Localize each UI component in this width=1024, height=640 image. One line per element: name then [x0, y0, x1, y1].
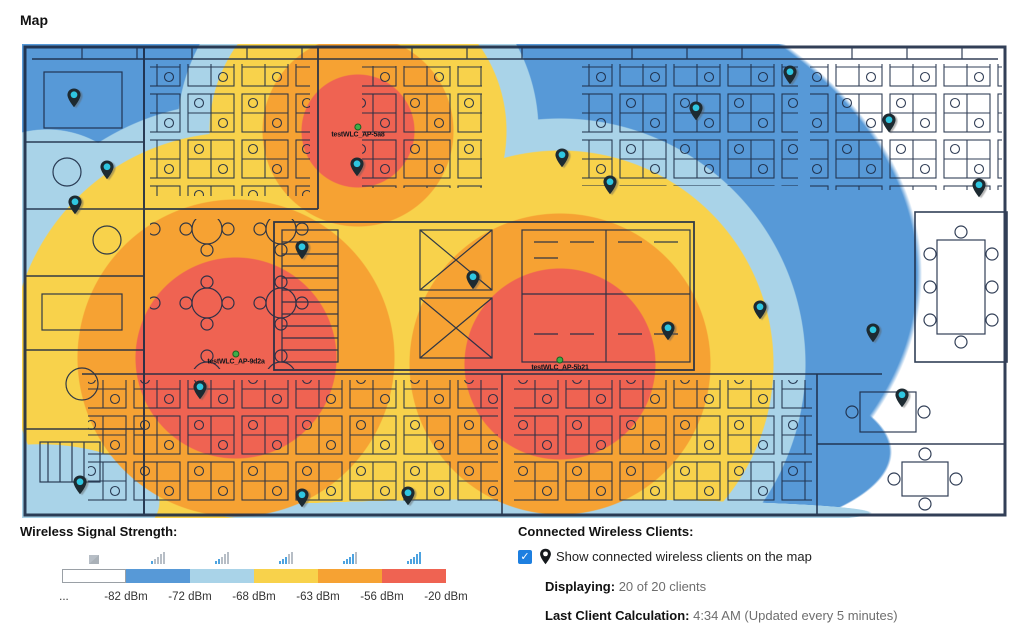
displaying-value: 20 of 20 clients — [619, 579, 706, 594]
legend-swatch — [382, 569, 446, 583]
legend-segment: -68 dBm — [190, 569, 254, 583]
last-calculation-line: Last Client Calculation: 4:34 AM (Update… — [545, 608, 898, 623]
client-pin[interactable] — [603, 174, 618, 195]
legend-segment: -82 dBm — [62, 569, 126, 583]
floor-map[interactable]: testWLC_AP-5a8testWLC_AP-9d2atestWLC_AP-… — [22, 44, 1008, 518]
signal-bars-icon — [407, 552, 421, 564]
client-pin[interactable] — [350, 156, 365, 177]
connected-clients-panel: Connected Wireless Clients: ✓ Show conne… — [516, 524, 898, 623]
legend-threshold-label: -72 dBm — [168, 591, 211, 603]
legend-segment: -72 dBm — [126, 569, 190, 583]
legend-bar: ... -82 dBm-72 dBm-68 dBm-63 dBm-56 dBm-… — [62, 569, 516, 583]
signal-bars-icon — [279, 552, 293, 564]
client-pin[interactable] — [555, 147, 570, 168]
displaying-label: Displaying: — [545, 579, 615, 594]
last-calculation-value: 4:34 AM (Updated every 5 minutes) — [693, 608, 898, 623]
signal-bars-icon — [89, 552, 99, 564]
signal-strength-legend: Wireless Signal Strength: ... -82 dBm-72… — [20, 524, 516, 623]
legend-swatch — [318, 569, 382, 583]
signal-bars-icon — [343, 552, 357, 564]
legend-swatch — [62, 569, 126, 583]
client-pin[interactable] — [466, 269, 481, 290]
legend-segment: -20 dBm — [382, 569, 446, 583]
client-pin[interactable] — [193, 379, 208, 400]
client-pin[interactable] — [753, 299, 768, 320]
legend-threshold-label: -63 dBm — [296, 591, 339, 603]
client-pin[interactable] — [100, 159, 115, 180]
legend-swatch — [190, 569, 254, 583]
client-pin[interactable] — [401, 485, 416, 506]
page-title: Map — [20, 12, 48, 28]
signal-bars-icon — [151, 552, 165, 564]
client-pin-icon — [539, 548, 552, 565]
client-pin[interactable] — [783, 64, 798, 85]
map-page: { "page": { "title": "Map" }, "legend": … — [0, 0, 1024, 640]
legend-threshold-label: -56 dBm — [360, 591, 403, 603]
client-pin[interactable] — [295, 487, 310, 508]
client-pin[interactable] — [295, 239, 310, 260]
legend-threshold-label: -68 dBm — [232, 591, 275, 603]
signal-bars-icon — [215, 552, 229, 564]
legend-title: Wireless Signal Strength: — [20, 524, 516, 539]
legend-swatch — [254, 569, 318, 583]
legend-threshold-label: -82 dBm — [104, 591, 147, 603]
legend-swatch — [126, 569, 190, 583]
client-pin[interactable] — [866, 322, 881, 343]
show-clients-label[interactable]: Show connected wireless clients on the m… — [556, 549, 812, 564]
client-pin[interactable] — [67, 87, 82, 108]
legend-threshold-label: -20 dBm — [424, 591, 467, 603]
last-calculation-label: Last Client Calculation: — [545, 608, 689, 623]
client-pin[interactable] — [689, 100, 704, 121]
legend-min-label: ... — [59, 591, 69, 603]
client-pin[interactable] — [895, 387, 910, 408]
client-pin[interactable] — [661, 320, 676, 341]
client-pin[interactable] — [68, 194, 83, 215]
show-clients-checkbox[interactable]: ✓ — [518, 550, 532, 564]
legend-segment: -63 dBm — [254, 569, 318, 583]
client-pin[interactable] — [972, 177, 987, 198]
clients-panel-title: Connected Wireless Clients: — [518, 524, 898, 539]
client-pin-layer — [22, 44, 1008, 518]
client-pin[interactable] — [882, 112, 897, 133]
client-pin[interactable] — [73, 474, 88, 495]
displaying-line: Displaying: 20 of 20 clients — [545, 579, 898, 594]
legend-segment: -56 dBm — [318, 569, 382, 583]
